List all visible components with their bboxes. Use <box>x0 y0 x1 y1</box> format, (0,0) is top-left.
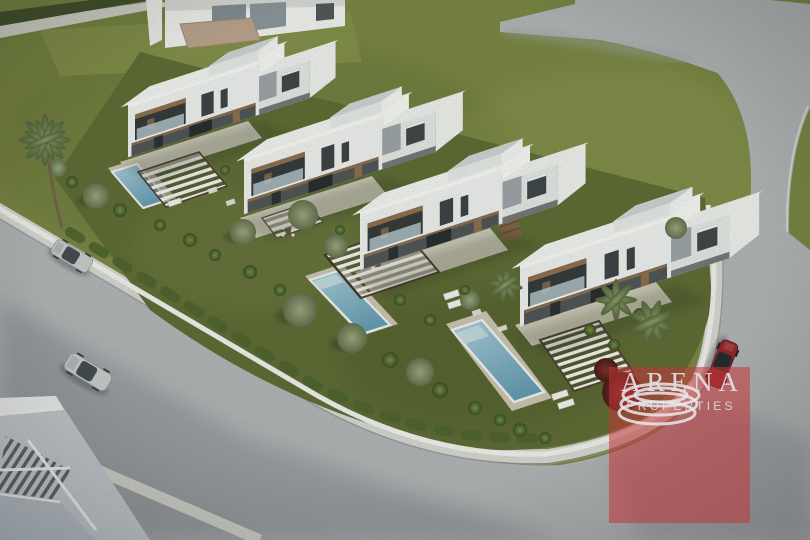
brand-name: ARENA <box>615 369 744 396</box>
brand-subtitle: PROPERTIES <box>623 400 735 412</box>
watermark: ARENA PROPERTIES <box>609 367 750 523</box>
aerial-render-scene: ARENA PROPERTIES <box>0 0 810 540</box>
